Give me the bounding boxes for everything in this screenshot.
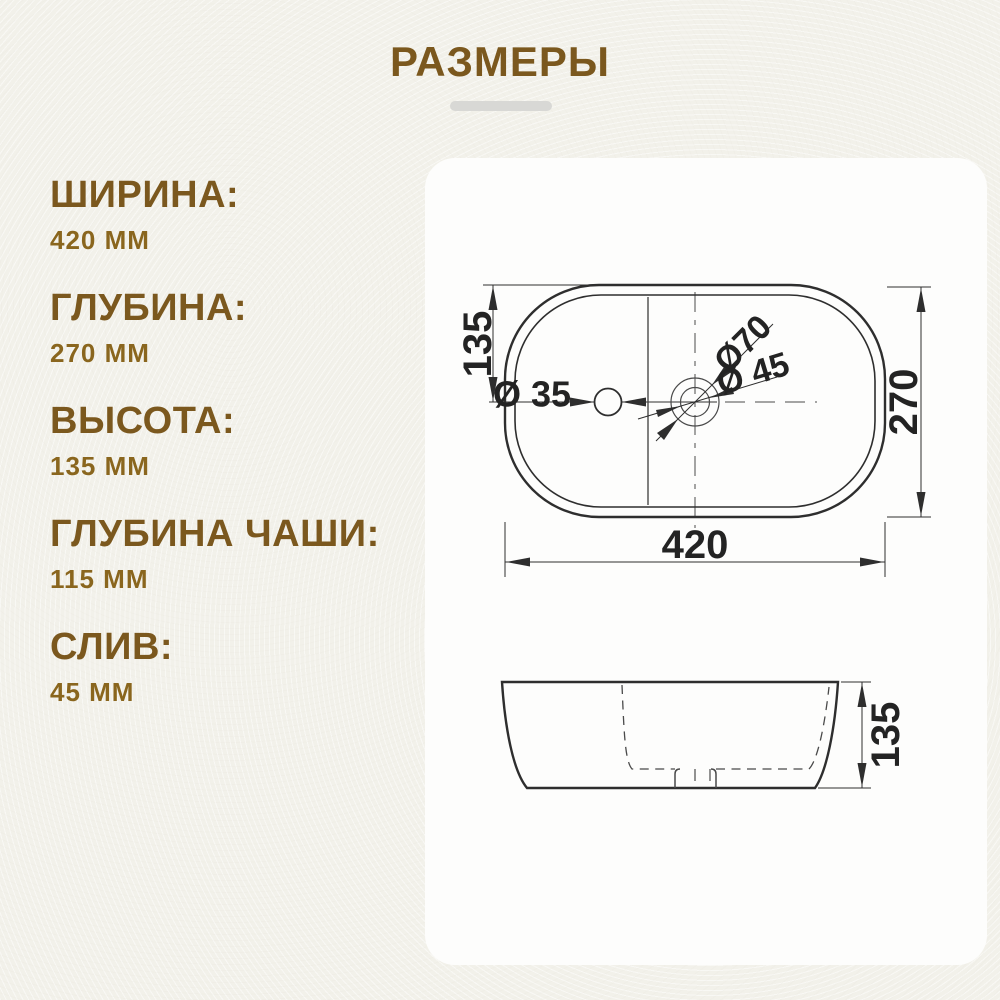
infographic-page: { "title": "РАЗМЕРЫ", "specs": [ { "labe…: [0, 0, 1000, 1000]
sink-side-view: 135: [502, 682, 908, 788]
spec-depth-label: ГЛУБИНА:: [50, 289, 247, 327]
dim-depth-label: 270: [882, 369, 926, 436]
faucet-hole-circle: [595, 389, 622, 416]
page-title: РАЗМЕРЫ: [0, 38, 1000, 86]
dim-420-arrow-left: [506, 558, 530, 567]
spec-drain: СЛИВ: 45 ММ: [50, 628, 173, 705]
drain-outlet-left-hook: [675, 769, 680, 788]
spec-drain-label: СЛИВ:: [50, 628, 173, 666]
dim-270-arrow-down: [917, 492, 926, 516]
dim-420-arrow-right: [860, 558, 884, 567]
divider-bar: [450, 101, 552, 111]
dim-faucet-arrow-left: [570, 398, 595, 407]
spec-depth: ГЛУБИНА: 270 ММ: [50, 289, 247, 366]
spec-height-label: ВЫСОТА:: [50, 402, 235, 440]
spec-depth-value: 270 ММ: [50, 340, 247, 366]
technical-drawing: Ø 35 Ø70 Ø 45 135: [425, 158, 987, 965]
dim-drain-inner-arrow-lower: [656, 406, 681, 417]
spec-width-value: 420 ММ: [50, 227, 239, 253]
spec-bowl-depth-label: ГЛУБИНА ЧАШИ:: [50, 515, 380, 553]
dim-135-arrow-up: [489, 286, 498, 310]
dim-faucet-arrow-right: [622, 398, 647, 407]
dim-half-depth-label: 135: [456, 311, 500, 378]
drain-outlet-right-hook: [711, 769, 716, 788]
spec-bowl-depth: ГЛУБИНА ЧАШИ: 115 ММ: [50, 515, 380, 592]
dim-faucet-hole-label: Ø 35: [493, 374, 571, 415]
spec-width-label: ШИРИНА:: [50, 176, 239, 214]
dim-side-height-label: 135: [864, 702, 908, 769]
sink-top-view: Ø 35 Ø70 Ø 45 135: [456, 285, 931, 577]
spec-width: ШИРИНА: 420 ММ: [50, 176, 239, 253]
dim-270-arrow-up: [917, 288, 926, 312]
spec-height: ВЫСОТА: 135 ММ: [50, 402, 235, 479]
side-profile-outline: [502, 682, 838, 788]
side-bowl-interior-dashed: [622, 685, 829, 769]
spec-height-value: 135 ММ: [50, 453, 235, 479]
drawing-card: Ø 35 Ø70 Ø 45 135: [425, 158, 987, 965]
dim-width-label: 420: [662, 523, 729, 567]
spec-drain-value: 45 ММ: [50, 679, 173, 705]
spec-bowl-depth-value: 115 ММ: [50, 566, 380, 592]
